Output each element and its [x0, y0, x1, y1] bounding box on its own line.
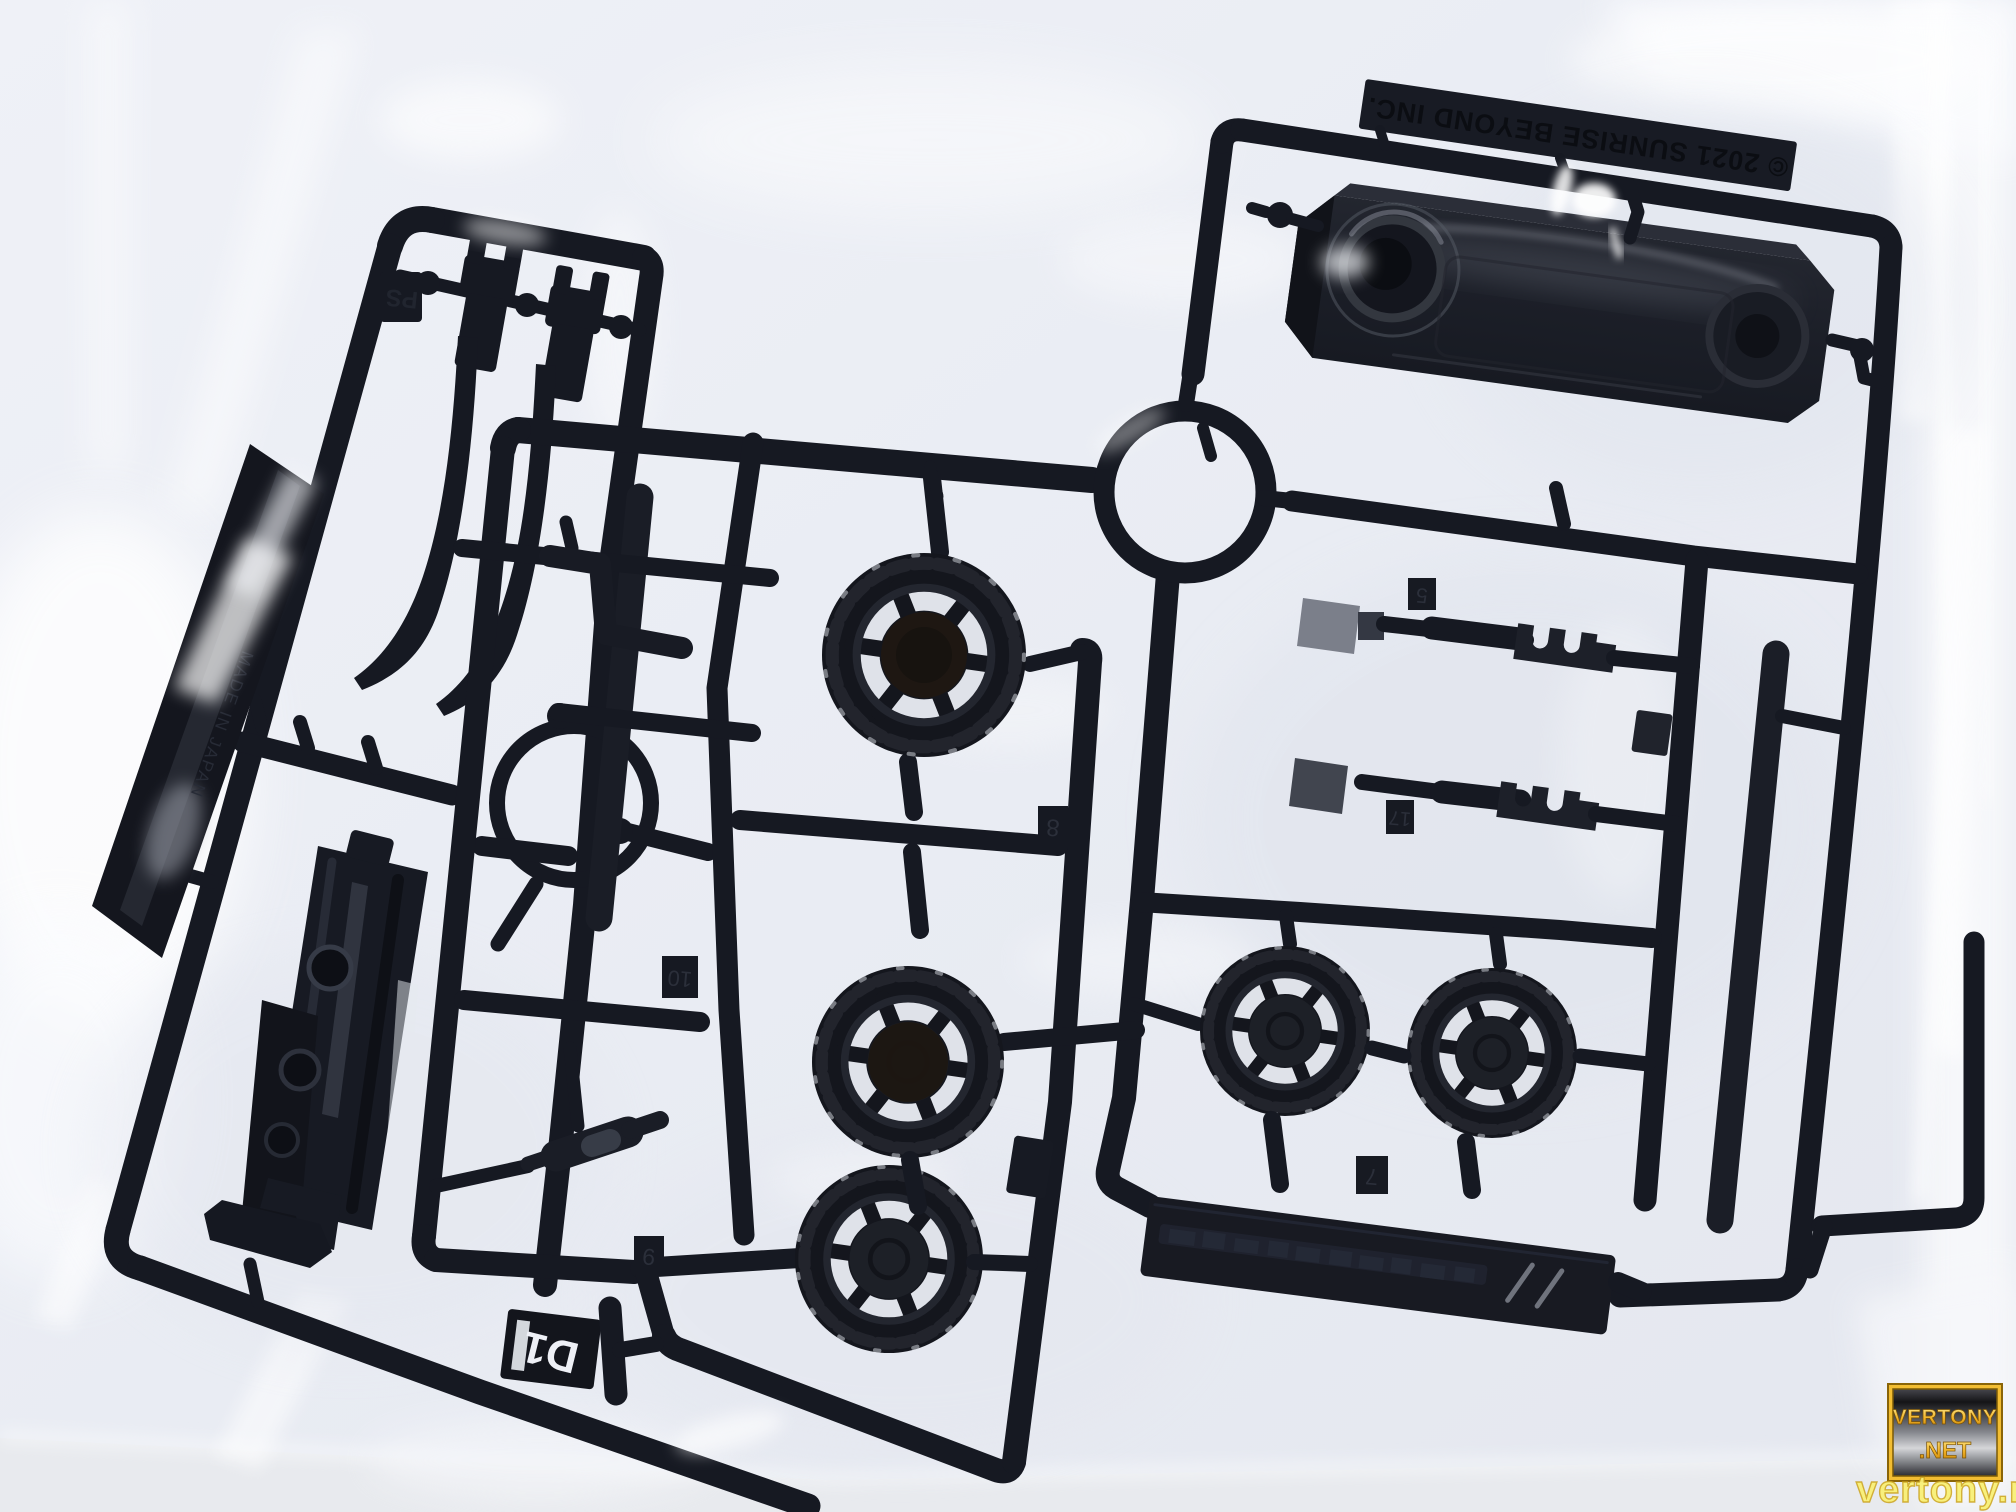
svg-text:9: 9 — [641, 1243, 656, 1270]
svg-text:5: 5 — [1415, 583, 1429, 607]
svg-text:VERTONY: VERTONY — [1893, 1406, 1998, 1429]
svg-text:vertony.net: vertony.net — [1856, 1469, 2016, 1511]
svg-text:17: 17 — [1388, 806, 1412, 830]
svg-text:.NET: .NET — [1919, 1437, 1971, 1463]
svg-text:PS: PS — [385, 283, 420, 313]
svg-text:10: 10 — [667, 965, 694, 992]
svg-text:8: 8 — [1045, 813, 1061, 841]
svg-text:7: 7 — [1364, 1163, 1379, 1190]
